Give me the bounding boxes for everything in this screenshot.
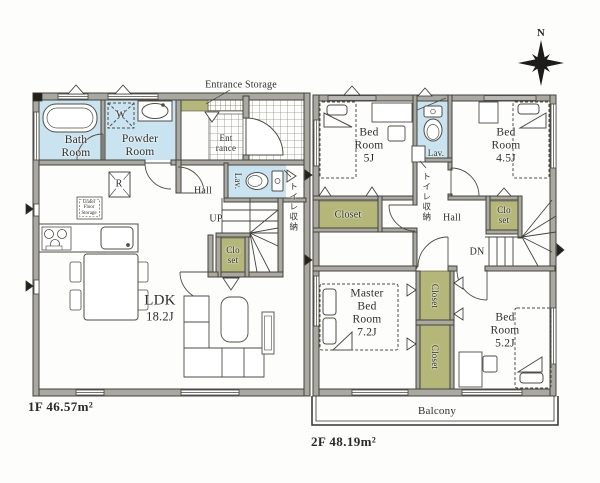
label-toilet-storage-2f: トイレ収納 [421, 172, 431, 222]
label-bed-room-45j: Bed Room 4.5J [492, 127, 521, 166]
label-washing-machine: W [116, 109, 126, 120]
label-closet-master-1: Closet [430, 284, 440, 308]
label-area-2f: 2F 48.19m² [311, 434, 376, 450]
label-under-floor-storage: Under Floor Storage [81, 200, 96, 216]
floor1-dining-set [70, 254, 148, 320]
label-compass-north: N [537, 27, 545, 39]
label-bed-room-5j: Bed Room 5J [355, 127, 384, 166]
floor-plan-page: Bath Room Powder Room W Entrance Storage… [0, 0, 600, 483]
label-ldk-size: 18.2J [144, 309, 175, 323]
label-ldk-name: LDK [144, 293, 175, 310]
label-closet-5j: Closet [335, 209, 362, 220]
label-fridge: R [116, 178, 123, 189]
label-up: UP [209, 213, 222, 224]
label-toilet-storage-1f: トイレ収納 [288, 182, 298, 232]
label-entrance: Ent rance [216, 133, 236, 153]
label-balcony: Balcony [418, 405, 456, 417]
label-entrance-storage: Entrance Storage [205, 79, 277, 90]
floor1-tile-areas [208, 98, 304, 163]
label-master-bed-room: Master Bed Room 7.2J [350, 287, 383, 339]
label-area-1f: 1F 46.57m² [28, 399, 93, 415]
label-lav-1f: Lav. [233, 173, 243, 189]
label-powder-room: Powder Room [122, 133, 158, 159]
label-lav-2f: Lav. [428, 148, 444, 158]
compass-icon [518, 40, 564, 86]
label-closet-45j: Clo set [497, 205, 511, 225]
label-ldk: LDK18.2J [144, 293, 175, 324]
label-hall-2f: Hall [443, 212, 461, 223]
label-bed-room-52j: Bed Room 5.2J [491, 312, 520, 351]
label-hall-1f: Hall [194, 185, 212, 196]
label-dn: DN [470, 246, 485, 257]
label-closet-master-2: Closet [430, 345, 440, 369]
label-bath-room: Bath Room [62, 134, 91, 160]
floor1-living-set [184, 296, 274, 377]
label-closet-1f: Clo set [226, 245, 240, 265]
